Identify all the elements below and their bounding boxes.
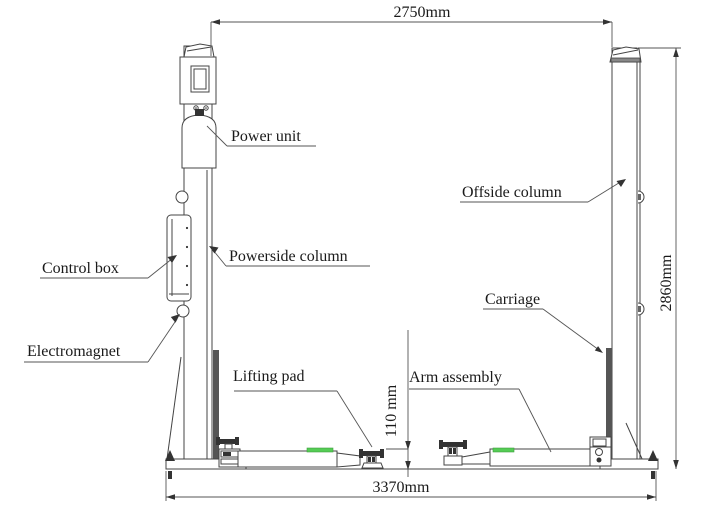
dimension-overall-height: 2860mm xyxy=(638,48,681,469)
anchor-bolt-right xyxy=(648,450,658,461)
label-electromagnet: Electromagnet xyxy=(27,343,121,360)
callout-control-box: Control box xyxy=(40,255,177,278)
label-power-unit: Power unit xyxy=(231,128,301,145)
label-arm-assembly: Arm assembly xyxy=(409,369,502,386)
label-control-box: Control box xyxy=(42,260,119,277)
callout-offside-column: Offside column xyxy=(460,179,626,202)
callout-arm-assembly: Arm assembly xyxy=(409,369,551,452)
dimension-base-width-text: 3370mm xyxy=(373,479,430,496)
green-stripe-right xyxy=(493,448,514,452)
lifting-pad-left xyxy=(359,449,384,468)
dimension-overall-height-text: 2860mm xyxy=(658,254,675,311)
dimension-pad-height-text: 110 mm xyxy=(383,384,400,437)
diagram-canvas: 2750mm 2860mm 3370mm 110 mm Power unit O… xyxy=(0,0,721,519)
label-offside-column: Offside column xyxy=(462,184,562,201)
dimension-base-width: 3370mm xyxy=(166,471,656,501)
arm-assembly-left xyxy=(216,437,384,468)
electromagnet-upper xyxy=(176,191,188,203)
offside-column-cap xyxy=(610,47,641,62)
anchor-bolt-left xyxy=(165,450,175,461)
dimension-top-width-text: 2750mm xyxy=(394,4,451,21)
green-stripe-left xyxy=(307,448,333,452)
label-powerside-column: Powerside column xyxy=(229,248,348,265)
dimension-pad-height: 110 mm xyxy=(383,330,411,477)
power-unit-cover xyxy=(182,115,216,168)
label-lifting-pad: Lifting pad xyxy=(233,368,305,385)
callout-electromagnet: Electromagnet xyxy=(24,314,180,362)
callout-carriage: Carriage xyxy=(483,291,603,353)
label-carriage: Carriage xyxy=(485,291,540,308)
offside-column xyxy=(612,48,643,461)
callout-power-unit: Power unit xyxy=(207,126,316,146)
arm-assembly-right xyxy=(439,437,611,466)
dimension-top-width: 2750mm xyxy=(211,4,612,56)
offside-column-notches xyxy=(638,191,644,315)
callout-powerside-column: Powerside column xyxy=(209,246,370,266)
gusset-line-left xyxy=(167,357,181,459)
callout-lifting-pad: Lifting pad xyxy=(233,368,372,447)
two-post-lift-technical-diagram: 2750mm 2860mm 3370mm 110 mm Power unit O… xyxy=(0,0,721,519)
